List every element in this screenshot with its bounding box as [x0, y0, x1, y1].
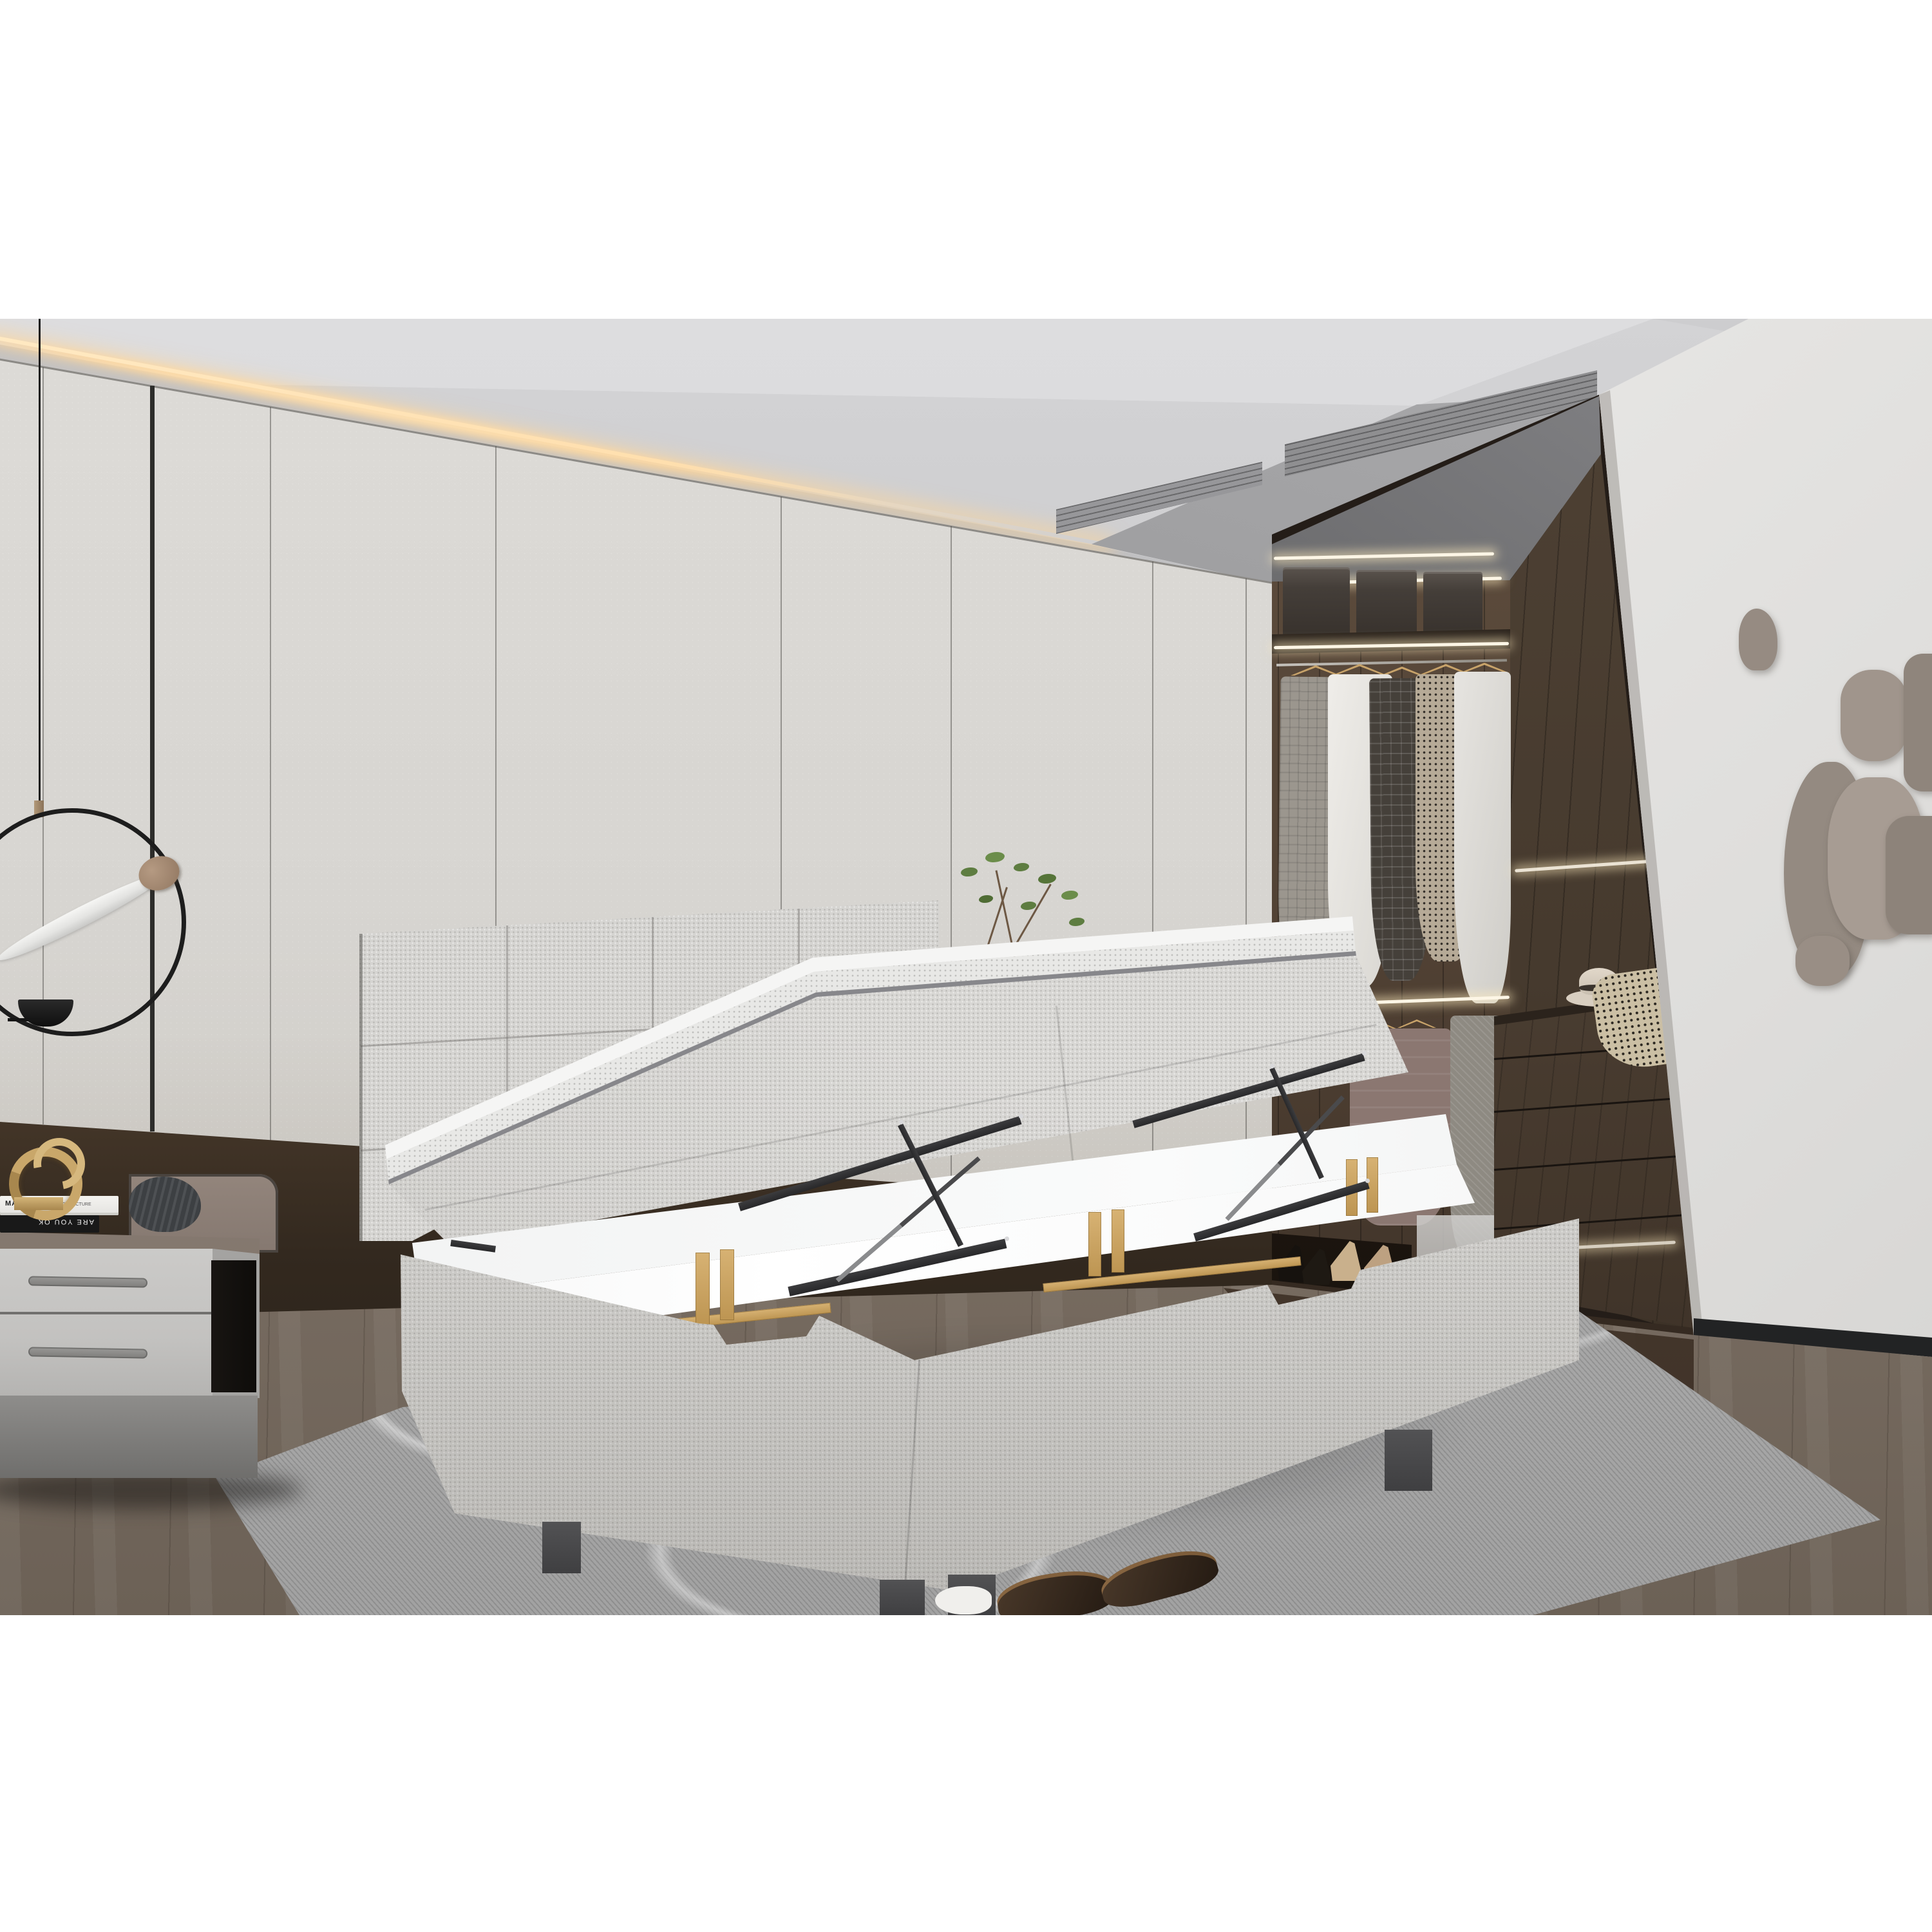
bed-foot — [880, 1580, 925, 1615]
storage-box — [1423, 572, 1482, 636]
nightstand — [0, 1249, 213, 1396]
wall-art-piece — [1904, 654, 1932, 791]
pendant-cord — [39, 319, 41, 803]
wood-slat-post — [1112, 1209, 1124, 1273]
gold-sculpture-base — [14, 1197, 63, 1210]
pendant-bar — [8, 1018, 43, 1021]
lift-bolt — [1005, 1236, 1009, 1241]
wall-art-piece — [1886, 816, 1932, 934]
bedroom-photo: MARKANOTHER ARCHITECTURE ARE YOU OK — [0, 319, 1932, 1615]
wardrobe-seam-dark — [150, 386, 155, 1132]
wood-slat-post — [696, 1253, 710, 1325]
lift-bolt — [1365, 1179, 1370, 1183]
lift-bolt — [1362, 1051, 1367, 1056]
lift-bolt — [1019, 1114, 1023, 1119]
wardrobe-seam — [270, 407, 271, 1141]
storage-box — [1283, 567, 1350, 636]
white-object — [935, 1586, 992, 1615]
bed-foot — [542, 1522, 581, 1573]
nightstand-plinth — [0, 1396, 258, 1478]
bed-foot — [1385, 1430, 1432, 1491]
wardrobe-seam — [1245, 578, 1247, 1202]
storage-box — [1356, 570, 1417, 636]
nightstand-drawer-gap — [0, 1312, 213, 1314]
knitted-sculpture — [129, 1177, 201, 1232]
wood-slat-post — [1088, 1212, 1101, 1276]
headboard-edge — [359, 934, 363, 1241]
wood-slat-post — [720, 1249, 734, 1320]
lift-bolt — [1270, 1064, 1274, 1068]
wall-art-piece — [1795, 936, 1850, 986]
wall-art-piece — [1841, 670, 1908, 761]
drawer-handle — [28, 1276, 147, 1287]
lift-bolt — [899, 1120, 904, 1124]
white-blouse — [1454, 672, 1511, 1003]
drawer-handle — [28, 1347, 147, 1358]
nightstand-open-niche — [211, 1260, 256, 1392]
